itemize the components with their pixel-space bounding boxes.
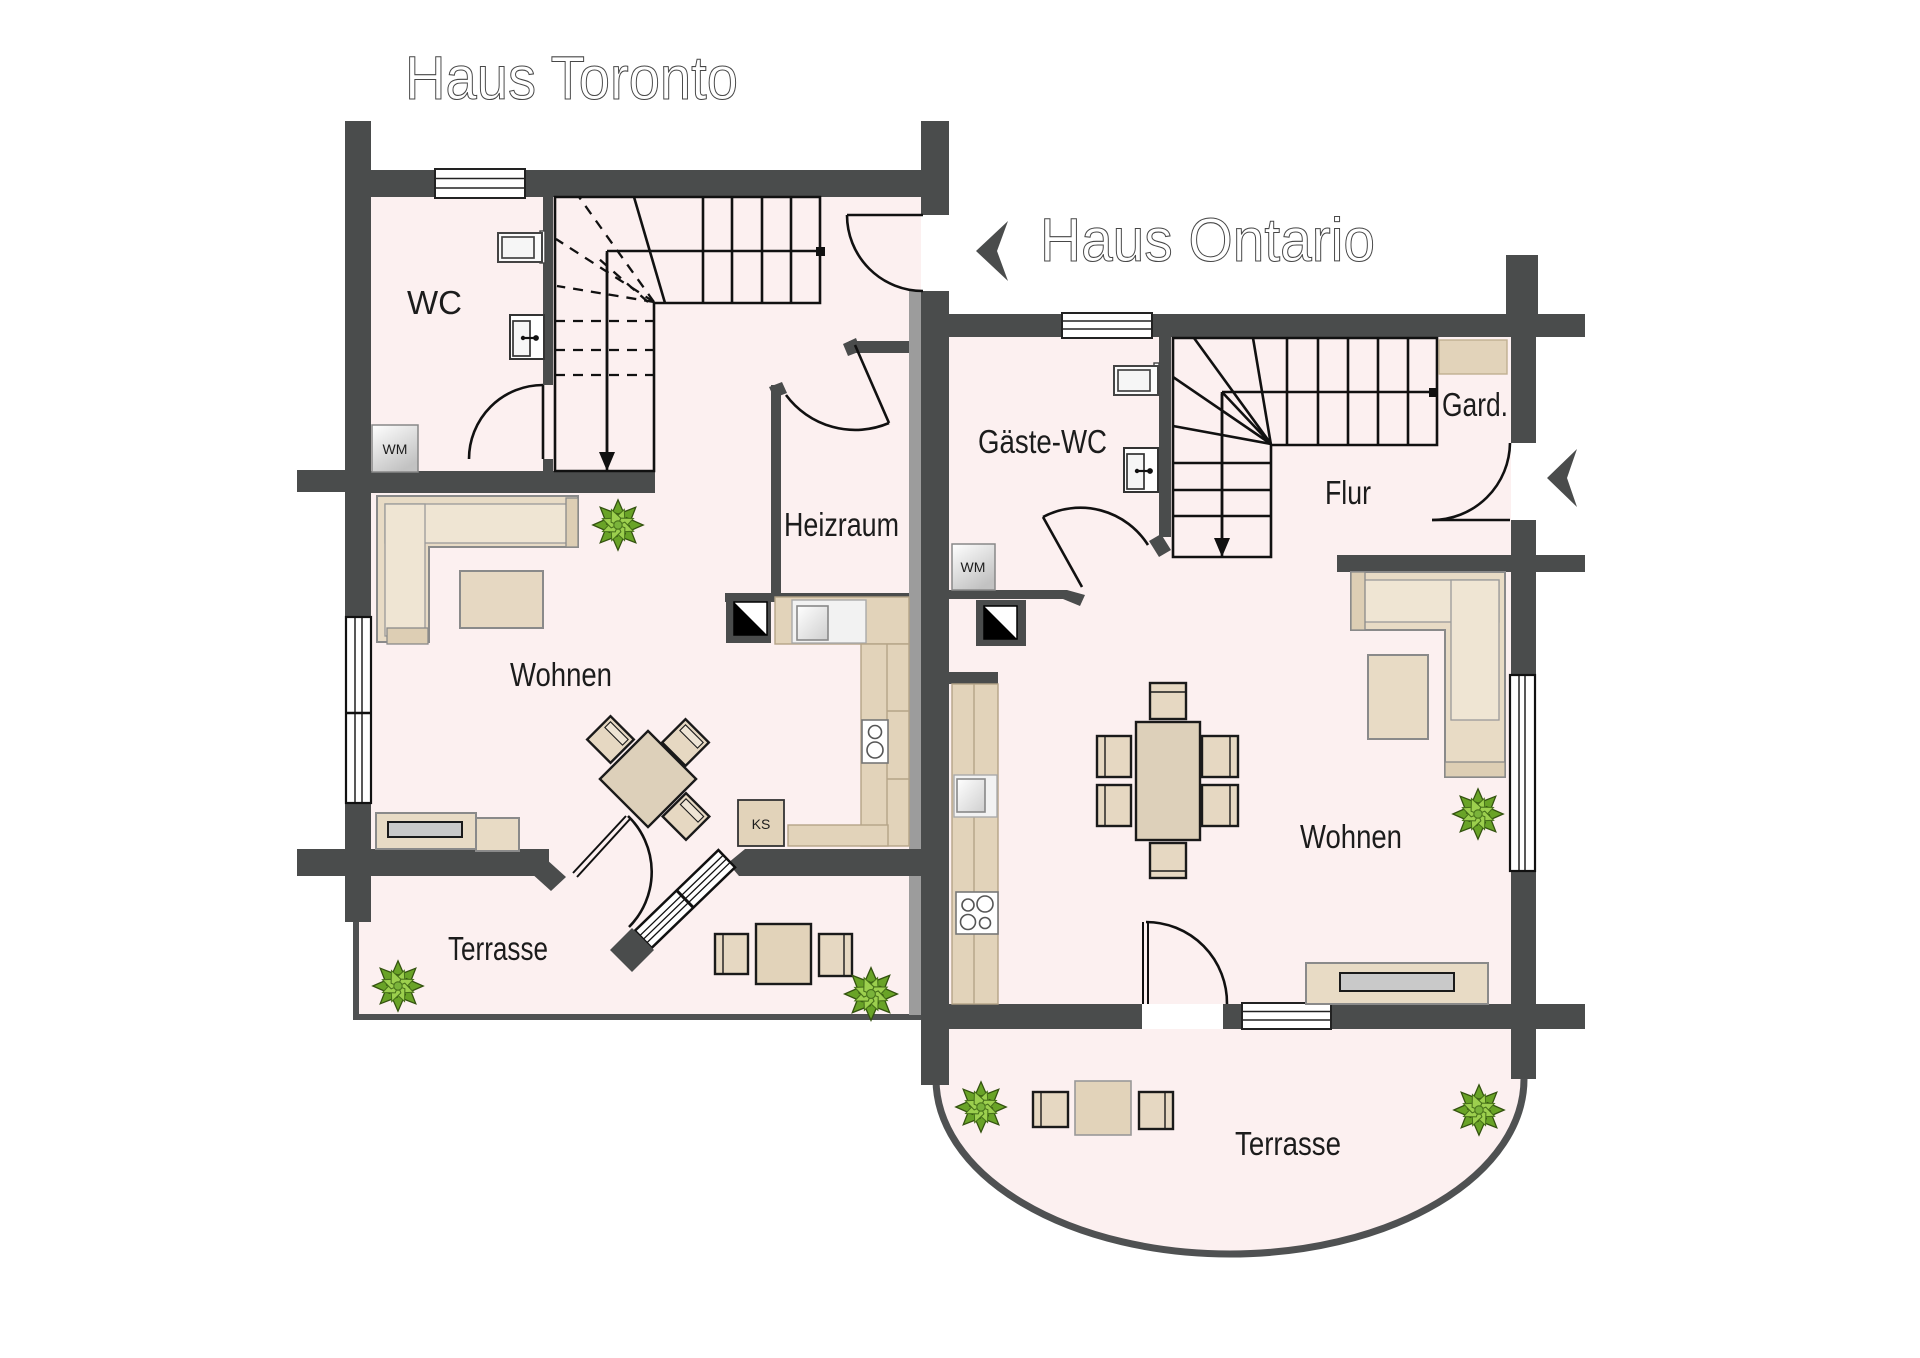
svg-text:KS: KS <box>752 816 771 832</box>
svg-text:Wohnen: Wohnen <box>510 656 612 693</box>
svg-text:Terrasse: Terrasse <box>448 930 548 967</box>
svg-text:WM: WM <box>383 441 408 457</box>
svg-text:Terrasse: Terrasse <box>1235 1125 1341 1162</box>
svg-text:Wohnen: Wohnen <box>1300 818 1402 855</box>
svg-text:WM: WM <box>961 559 986 575</box>
svg-text:Flur: Flur <box>1325 474 1371 511</box>
svg-text:Haus Ontario: Haus Ontario <box>1040 206 1375 274</box>
svg-text:Gard.: Gard. <box>1442 386 1508 423</box>
svg-text:Heizraum: Heizraum <box>784 506 899 543</box>
svg-text:WC: WC <box>407 284 462 321</box>
svg-text:Haus Toronto: Haus Toronto <box>405 44 738 112</box>
svg-text:Gäste-WC: Gäste-WC <box>978 423 1107 460</box>
